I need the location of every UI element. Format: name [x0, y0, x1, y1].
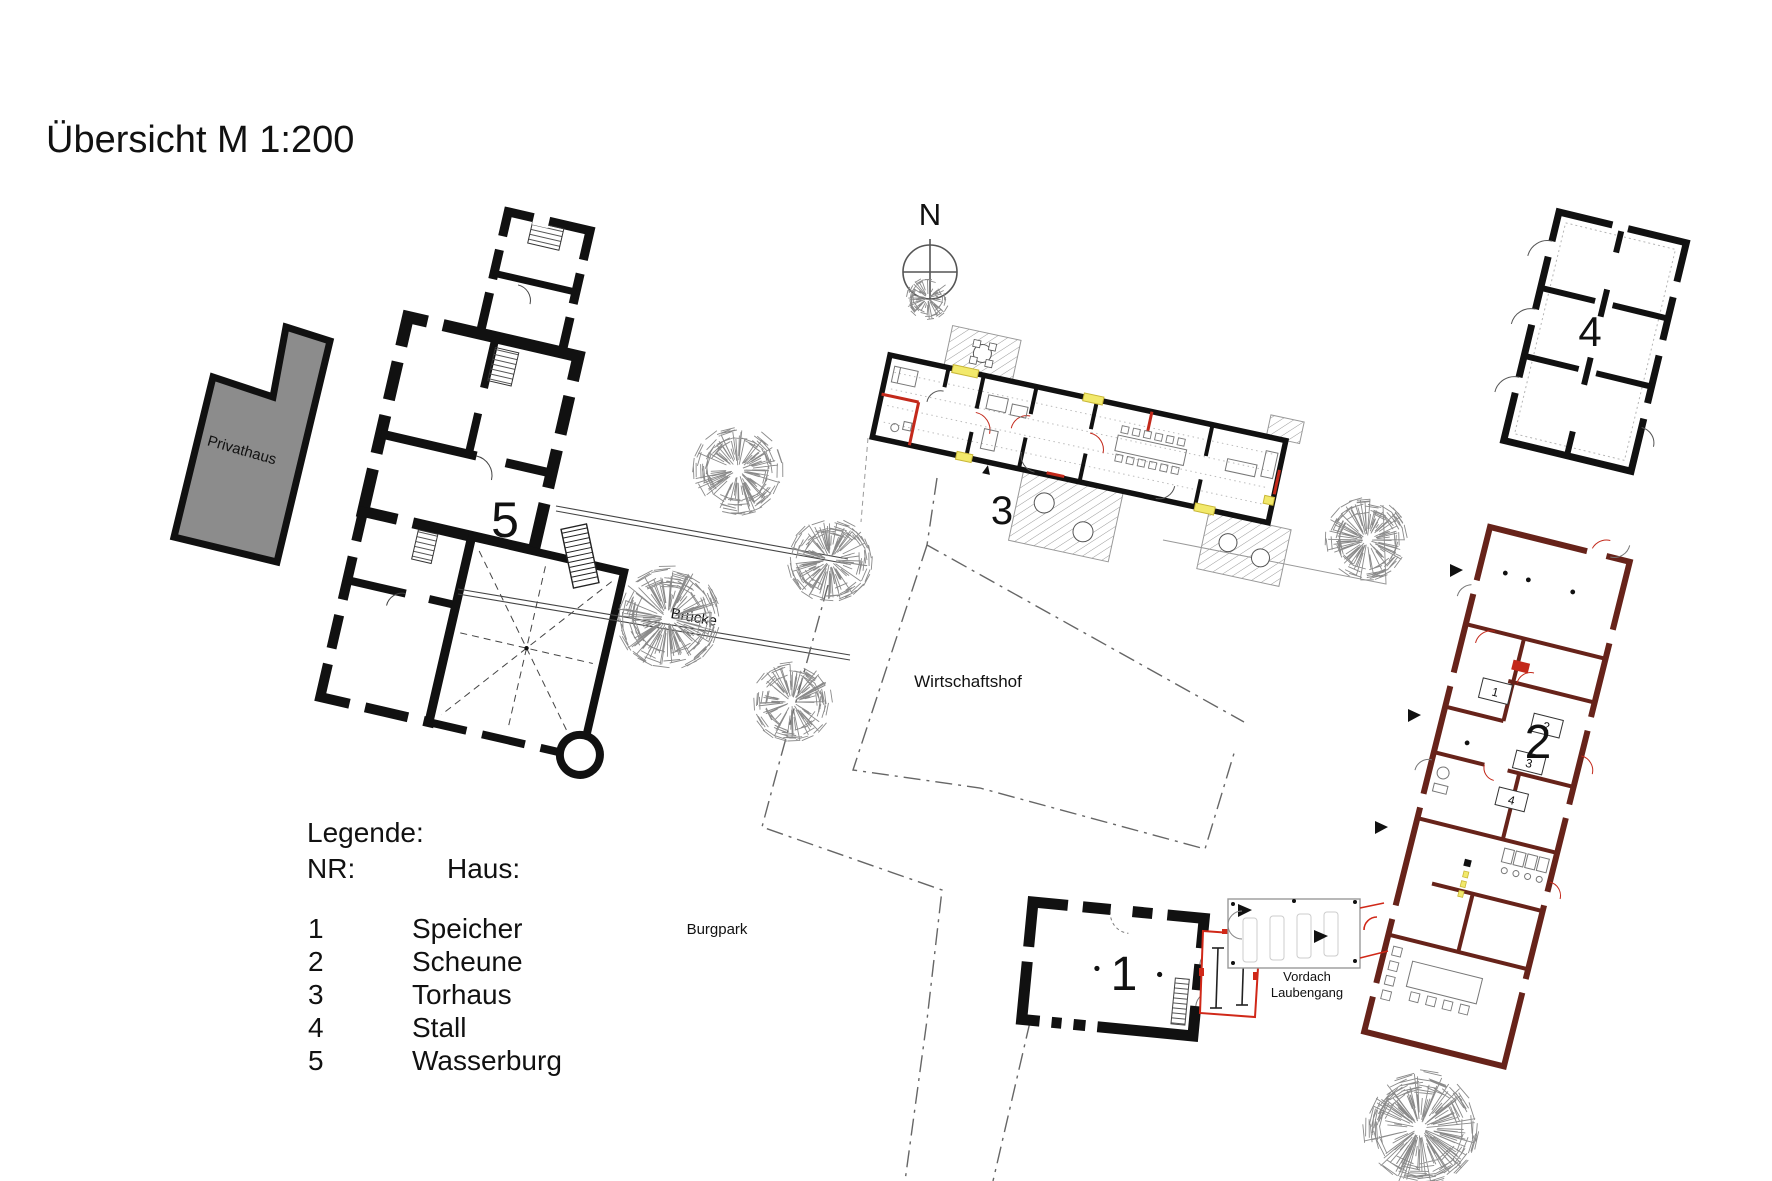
wasserburg-number-label: 5	[491, 492, 519, 548]
svg-text:Speicher: Speicher	[412, 913, 523, 944]
legend-row: 5 Wasserburg	[308, 1045, 562, 1076]
legend-col-haus: Haus:	[447, 853, 520, 884]
vordach-label-line1: Vordach	[1283, 969, 1331, 984]
svg-text:2: 2	[308, 946, 324, 977]
tree	[1363, 1070, 1479, 1181]
tree	[754, 662, 833, 741]
burgpark-label: Burgpark	[687, 921, 748, 938]
torhaus-number-label: 3	[991, 489, 1013, 533]
site-plan-page: Übersicht M 1:200 N Privathaus	[0, 0, 1772, 1181]
legend-heading: Legende:	[307, 817, 424, 848]
north-arrow-icon: N	[903, 197, 957, 299]
building-wasserburg	[309, 187, 716, 779]
svg-text:Wasserburg: Wasserburg	[412, 1045, 562, 1076]
wirtschaftshof-label: Wirtschaftshof	[914, 672, 1022, 691]
legend-row: 2 Scheune	[308, 946, 523, 977]
speicher-number-label: 1	[1111, 948, 1138, 1001]
svg-text:5: 5	[308, 1045, 324, 1076]
legend: Legende: NR: Haus: 1 Speicher 2 Scheune …	[307, 817, 562, 1076]
legend-col-nr: NR:	[307, 853, 355, 884]
legend-row: 1 Speicher	[308, 913, 523, 944]
legend-row: 4 Stall	[308, 1012, 466, 1043]
svg-text:1: 1	[308, 913, 324, 944]
svg-text:Scheune: Scheune	[412, 946, 523, 977]
svg-text:4: 4	[308, 1012, 324, 1043]
tree	[693, 428, 783, 516]
stall-number-label: 4	[1578, 308, 1601, 355]
building-scheune: 1 2 3 4	[1350, 508, 1649, 1070]
svg-text:3: 3	[308, 979, 324, 1010]
building-torhaus	[857, 314, 1318, 598]
legend-row: 3 Torhaus	[308, 979, 512, 1010]
site-plan-drawing: Übersicht M 1:200 N Privathaus	[0, 0, 1772, 1181]
scheune-number-label: 2	[1525, 716, 1552, 769]
tree	[1325, 498, 1407, 580]
round-tower	[556, 731, 604, 779]
page-title: Übersicht M 1:200	[46, 119, 354, 161]
vordach-label-line2: Laubengang	[1271, 985, 1343, 1000]
building-privathaus: Privathaus	[174, 327, 330, 562]
svg-text:Torhaus: Torhaus	[412, 979, 512, 1010]
svg-text:Stall: Stall	[412, 1012, 466, 1043]
north-label: N	[919, 197, 941, 232]
